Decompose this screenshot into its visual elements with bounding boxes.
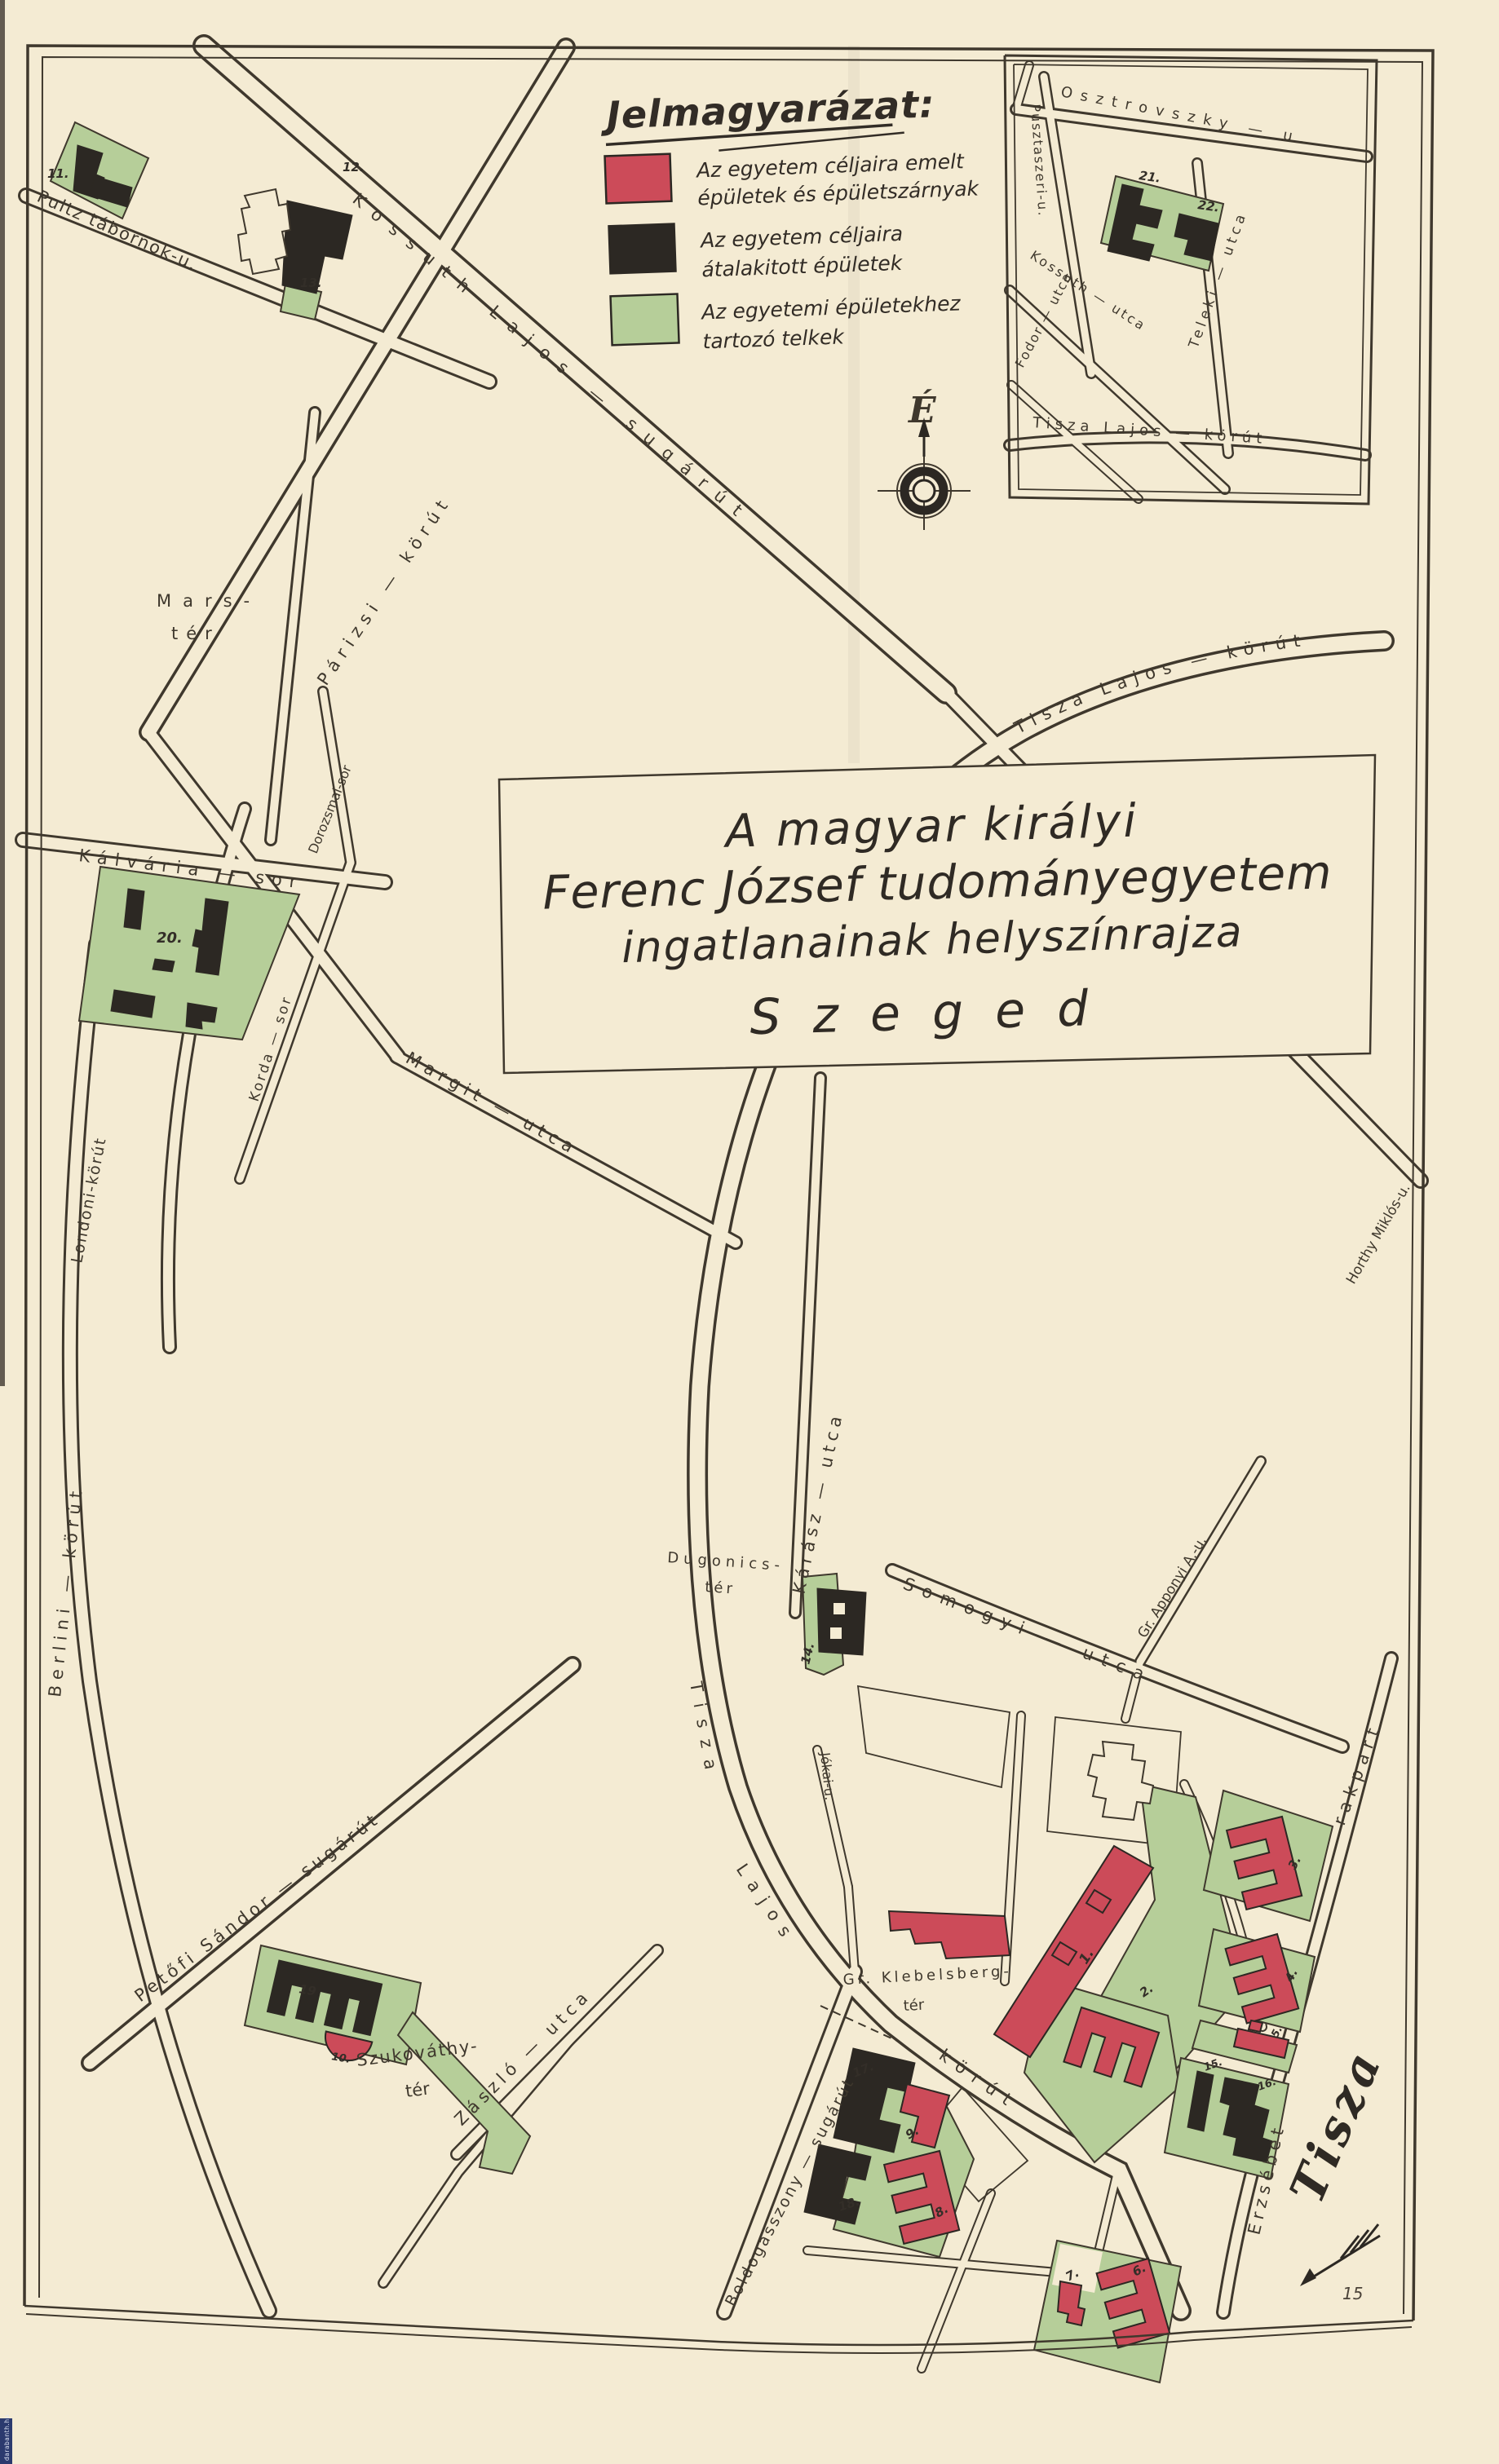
inset-map: Osztrovszky — u. Pusztaszeri-u. Kossuth …: [1005, 55, 1377, 504]
title-line-1: A magyar királyi: [723, 795, 1139, 859]
place-label-klebelsberg-2: tér: [903, 1997, 925, 2015]
building-14: [817, 1588, 866, 1655]
building-5-annex: [1249, 2020, 1262, 2032]
building-number-13: 13.: [300, 276, 322, 290]
place-label-mars-1: Mars-: [157, 591, 261, 611]
scan-edge: [0, 0, 5, 1386]
building-number-19: 19: [298, 1981, 317, 1998]
title-line-4: S z e g e d: [749, 980, 1097, 1046]
building-number-22: 22.: [1196, 197, 1220, 215]
place-label-dugonics-2: tér: [705, 1579, 736, 1598]
watermark-text: darabanth.hu: [3, 2414, 11, 2461]
page-number: 15: [1342, 2284, 1363, 2303]
place-label-szukovathy-2: tér: [405, 2078, 431, 2100]
watermark: darabanth.hu: [0, 2414, 12, 2464]
title-block: A magyar királyi Ferenc József tudománye…: [499, 755, 1375, 1073]
legend-item-3-line-2: tartozó telkek: [702, 325, 846, 353]
legend-swatch-red: [605, 154, 672, 204]
building-number-20: 20.: [157, 930, 183, 947]
scanned-map-page: Osztrovszky — u. Pusztaszeri-u. Kossuth …: [0, 0, 1499, 2464]
legend-swatch-black: [609, 224, 676, 274]
map-svg: Osztrovszky — u. Pusztaszeri-u. Kossuth …: [0, 0, 1499, 2464]
building-number-21: 21.: [1138, 168, 1161, 186]
place-label-mars-2: tér: [171, 624, 220, 643]
building-20c: [153, 959, 175, 972]
building-20a: [124, 889, 144, 930]
building-number-12: 12.: [343, 160, 365, 174]
building-number-11: 11.: [47, 166, 69, 181]
legend-swatch-green: [611, 294, 679, 345]
